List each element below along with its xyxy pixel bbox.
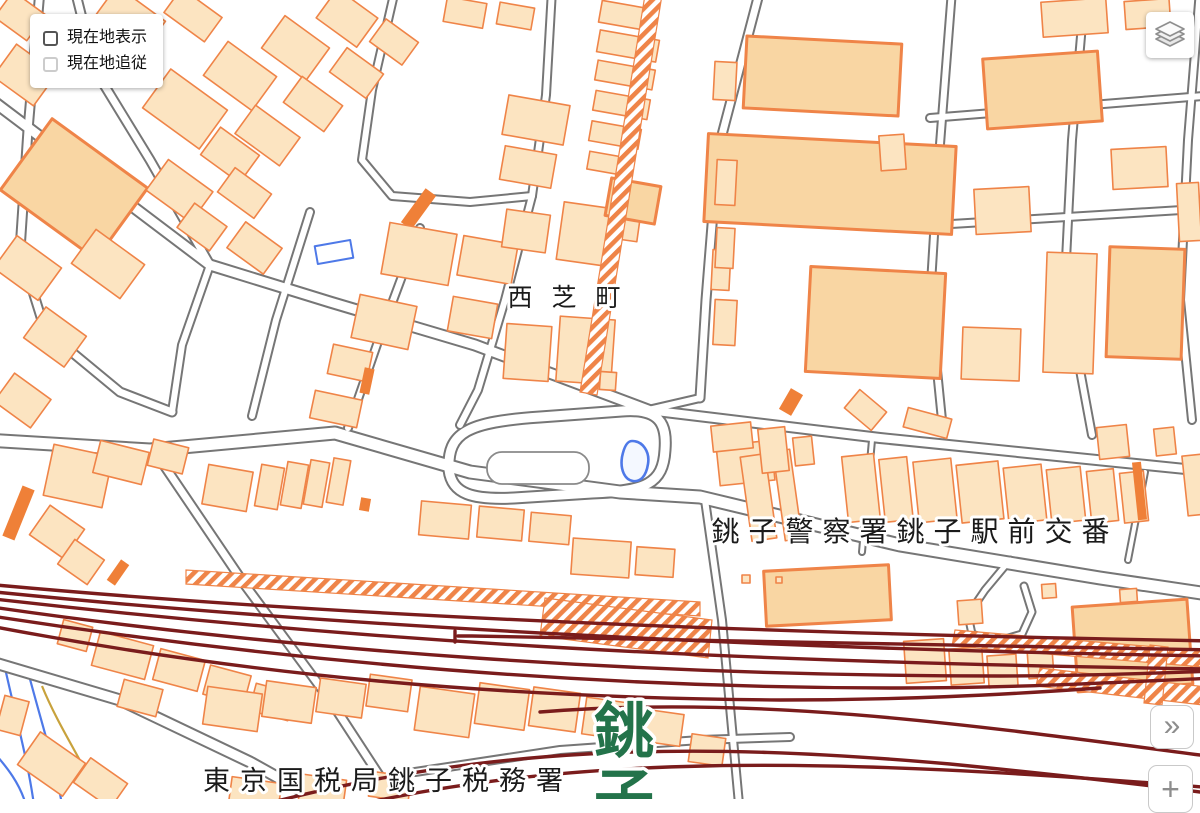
poi-label-tokyo-tax-office: 東京国税局銚子税務署 (203, 766, 573, 796)
follow-current-location-option[interactable]: 現在地追従 (43, 51, 147, 77)
follow-current-location-checkbox[interactable] (43, 57, 58, 72)
layers-icon (1152, 19, 1188, 51)
town-label-nishi-shiba-cho: 西 芝 町 (508, 284, 627, 312)
double-chevron-right-icon: » (1164, 709, 1181, 743)
pond-layer (622, 441, 649, 481)
layers-button[interactable] (1146, 12, 1194, 58)
poi-label-choshi-police-box: 銚子警察署銚子駅前交番 (711, 516, 1118, 547)
show-current-location-option[interactable]: 現在地表示 (43, 25, 147, 51)
expand-button[interactable]: » (1150, 705, 1194, 749)
show-current-location-label: 現在地表示 (67, 30, 147, 46)
zoom-in-button[interactable]: + (1148, 765, 1193, 813)
map-canvas[interactable]: 西 芝 町銚子警察署銚子駅前交番東京国税局銚子税務署銚子 (0, 0, 1200, 799)
location-panel: 現在地表示 現在地追従 (30, 14, 163, 88)
plus-icon: + (1161, 771, 1180, 808)
show-current-location-checkbox[interactable] (43, 31, 58, 46)
station-label-choshi: 銚子 (594, 698, 654, 799)
follow-current-location-label: 現在地追従 (67, 56, 147, 72)
